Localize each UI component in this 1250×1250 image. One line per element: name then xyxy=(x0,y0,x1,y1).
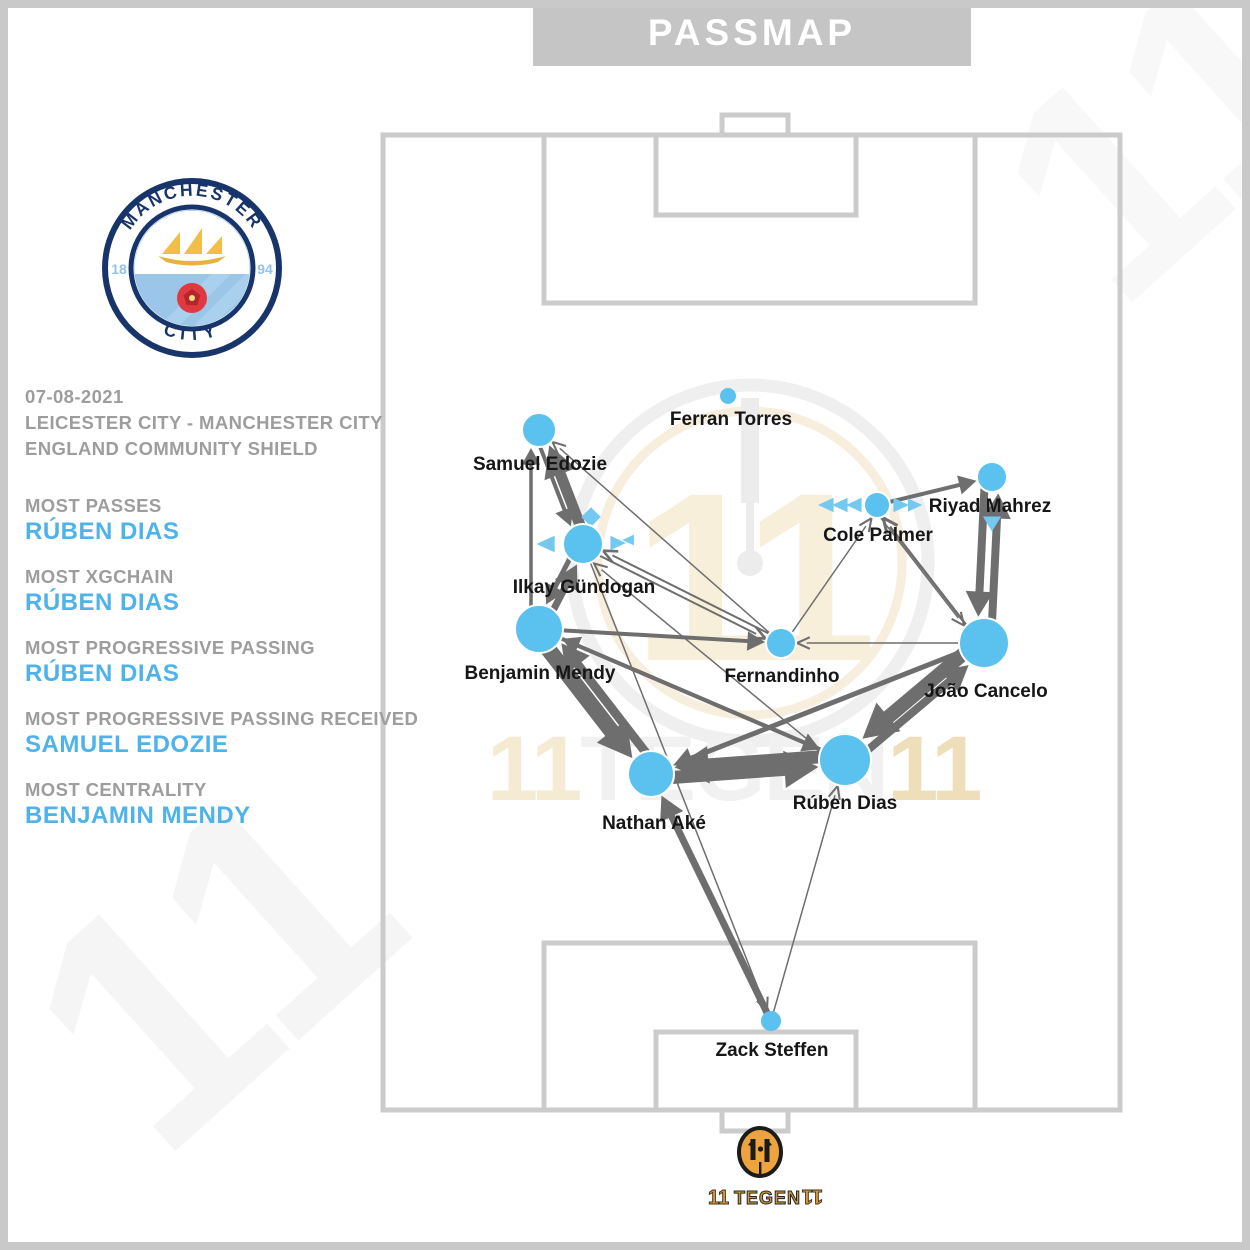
title-bar: PASSMAP xyxy=(533,0,971,66)
stat-block: MOST CENTRALITYBENJAMIN MENDY xyxy=(25,778,418,830)
player-label-mahrez: Riyad Mahrez xyxy=(929,496,1051,517)
stat-block: MOST PROGRESSIVE PASSING RECEIVEDSAMUEL … xyxy=(25,707,418,759)
player-label-cancelo: João Cancelo xyxy=(924,681,1048,702)
stat-value: BENJAMIN MENDY xyxy=(25,801,418,830)
stat-label: MOST PROGRESSIVE PASSING RECEIVED xyxy=(25,707,418,730)
brand-logo: 11 TEGEN 11 xyxy=(708,1128,823,1209)
player-label-palmer: Cole Palmer xyxy=(823,525,933,546)
badge-year-right: 94 xyxy=(257,261,273,277)
badge-rose-icon xyxy=(177,283,207,313)
watermark-band-11-right: 11 xyxy=(887,718,980,820)
player-node-mahrez xyxy=(977,462,1007,492)
player-label-gundogan: Ilkay Gündogan xyxy=(513,577,656,598)
pass-edge xyxy=(669,811,771,1021)
match-fixture: LEICESTER CITY - MANCHESTER CITY xyxy=(25,410,383,436)
player-label-ake: Nathan Aké xyxy=(602,813,706,834)
player-node-ake xyxy=(628,751,674,797)
stat-label: MOST XGCHAIN xyxy=(25,565,418,588)
player-node-fernandinho xyxy=(766,628,796,658)
player-node-dias xyxy=(819,734,871,786)
stats-list: MOST PASSESRÚBEN DIASMOST XGCHAINRÚBEN D… xyxy=(25,494,418,849)
player-node-gundogan xyxy=(563,524,603,564)
player-label-edozie: Samuel Edozie xyxy=(473,454,607,475)
stat-value: RÚBEN DIAS xyxy=(25,659,418,688)
club-badge: MANCHESTER CITY 18 94 xyxy=(100,176,284,360)
goal-top xyxy=(722,115,788,135)
brand-text-tegen: TEGEN xyxy=(734,1188,801,1208)
stat-value: RÚBEN DIAS xyxy=(25,588,418,617)
player-node-steffen xyxy=(761,1011,781,1031)
stat-value: SAMUEL EDOZIE xyxy=(25,730,418,759)
stat-block: MOST PASSESRÚBEN DIAS xyxy=(25,494,418,546)
match-meta: 07-08-2021 LEICESTER CITY - MANCHESTER C… xyxy=(25,384,383,462)
pass-edge xyxy=(979,477,985,598)
player-node-palmer xyxy=(864,492,890,518)
stat-block: MOST PROGRESSIVE PASSINGRÚBEN DIAS xyxy=(25,636,418,688)
stat-value: RÚBEN DIAS xyxy=(25,517,418,546)
player-label-torres: Ferran Torres xyxy=(670,409,792,430)
watermark-corner-top-right: 11 xyxy=(936,0,1250,363)
right-pass-marker-icon xyxy=(610,536,626,550)
penalty-area-bottom xyxy=(544,943,975,1110)
player-node-torres xyxy=(720,388,736,404)
stat-label: MOST PASSES xyxy=(25,494,418,517)
brand-text-11-left: 11 xyxy=(708,1187,729,1209)
pass-edge xyxy=(771,795,835,1021)
match-competition: ENGLAND COMMUNITY SHIELD xyxy=(25,436,383,462)
player-label-steffen: Zack Steffen xyxy=(716,1040,829,1061)
player-label-dias: Rúben Dias xyxy=(793,793,898,814)
player-node-mendy xyxy=(515,605,563,653)
player-node-edozie xyxy=(522,413,556,447)
stat-label: MOST CENTRALITY xyxy=(25,778,418,801)
brand-text-11-right: 11 xyxy=(802,1185,823,1207)
goal-area-top xyxy=(656,135,856,215)
pass-arrowhead xyxy=(957,476,976,495)
match-date: 07-08-2021 xyxy=(25,384,383,410)
stat-block: MOST XGCHAINRÚBEN DIAS xyxy=(25,565,418,617)
player-node-cancelo xyxy=(959,618,1009,668)
left-pass-marker-icon xyxy=(537,536,555,553)
badge-year-left: 18 xyxy=(111,261,127,277)
player-label-fernandinho: Fernandinho xyxy=(724,666,839,687)
player-label-mendy: Benjamin Mendy xyxy=(465,663,616,684)
watermark-band-11-left: 11 xyxy=(487,718,580,820)
stat-label: MOST PROGRESSIVE PASSING xyxy=(25,636,418,659)
page-title: PASSMAP xyxy=(648,12,856,54)
penalty-area-top xyxy=(544,135,975,303)
